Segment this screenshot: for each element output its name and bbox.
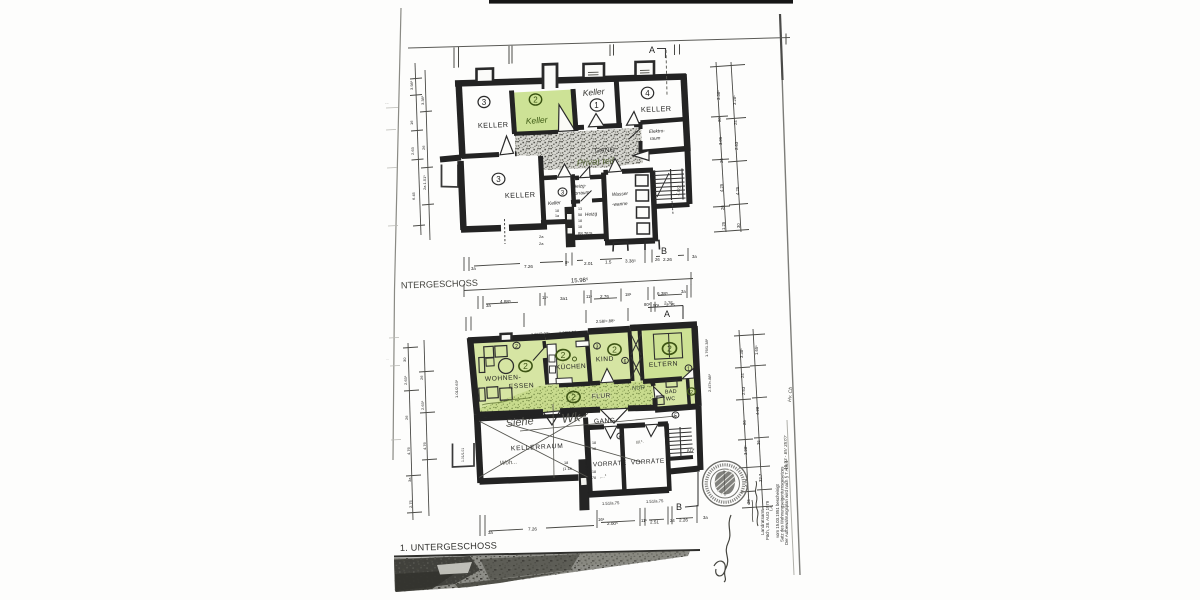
svg-text:GANG: GANG bbox=[595, 147, 615, 155]
svg-text:3: 3 bbox=[596, 344, 599, 350]
svg-text:26: 26 bbox=[655, 257, 660, 262]
svg-text:3.38⁵: 3.38⁵ bbox=[739, 348, 744, 358]
svg-text:2a 1.51⁵: 2a 1.51⁵ bbox=[422, 175, 427, 190]
svg-text:1.76/1.38⁵: 1.76/1.38⁵ bbox=[704, 338, 709, 357]
svg-text:2.26: 2.26 bbox=[663, 257, 672, 262]
svg-text:1.51/a.75: 1.51/a.75 bbox=[602, 500, 620, 506]
svg-text:B: B bbox=[676, 502, 682, 512]
svg-text:KELLER: KELLER bbox=[641, 104, 672, 114]
svg-text:BAD: BAD bbox=[665, 389, 677, 396]
svg-text:A: A bbox=[649, 45, 655, 55]
svg-text:11⁵: 11⁵ bbox=[641, 518, 647, 523]
svg-text:3.98⁵: 3.98⁵ bbox=[409, 80, 414, 90]
svg-text:1.01/2.63⁵: 1.01/2.63⁵ bbox=[454, 379, 459, 398]
svg-text:8⁵: 8⁵ bbox=[565, 260, 569, 265]
svg-text:26: 26 bbox=[720, 205, 725, 210]
svg-text:13: 13 bbox=[578, 207, 582, 211]
svg-text:2: 2 bbox=[667, 344, 672, 354]
svg-text:-.-.: -.-. bbox=[385, 101, 389, 105]
svg-text:16⁵: 16⁵ bbox=[598, 517, 605, 522]
svg-text:2: 2 bbox=[561, 350, 566, 360]
svg-text:KELLER: KELLER bbox=[478, 120, 509, 130]
svg-text:6.38⁵: 6.38⁵ bbox=[657, 291, 668, 296]
svg-text:24: 24 bbox=[740, 373, 745, 378]
svg-text:58: 58 bbox=[578, 213, 582, 217]
svg-text:Keller: Keller bbox=[548, 200, 562, 207]
svg-text:26: 26 bbox=[419, 375, 424, 380]
svg-text:3a: 3a bbox=[692, 254, 697, 259]
svg-text:4.28: 4.28 bbox=[755, 406, 760, 415]
svg-text:2: 2 bbox=[612, 345, 617, 355]
svg-text:2.63: 2.63 bbox=[741, 386, 746, 395]
svg-text:3a: 3a bbox=[486, 303, 491, 308]
svg-text:3: 3 bbox=[496, 175, 501, 184]
svg-text:Der Aufbewahrungsplan wird nac: Der Aufbewahrungsplan wird nach § 7 Abs.… bbox=[784, 460, 789, 545]
svg-text:...: ... bbox=[386, 357, 389, 361]
svg-text:2: 2 bbox=[523, 361, 528, 371]
svg-text:7.26: 7.26 bbox=[528, 527, 537, 532]
svg-text:KIND: KIND bbox=[596, 356, 614, 364]
svg-text:vom 15.03.1951 bescheinigt: vom 15.03.1951 bescheinigt bbox=[775, 483, 780, 538]
svg-text:GANG: GANG bbox=[594, 417, 616, 425]
svg-text:3.05: 3.05 bbox=[718, 136, 723, 145]
svg-text:4.25: 4.25 bbox=[719, 183, 724, 192]
svg-text:2.75: 2.75 bbox=[664, 301, 673, 306]
svg-text:15.93 - BV 357/7: 15.93 - BV 357/7 bbox=[783, 435, 788, 470]
svg-text:Satz des Wohnungseigentumsgese: Satz des Wohnungseigentumsgesetzes bbox=[780, 467, 785, 542]
svg-text:2.26: 2.26 bbox=[679, 518, 688, 523]
svg-text:2a: 2a bbox=[539, 241, 544, 246]
svg-text:11⁵: 11⁵ bbox=[586, 294, 592, 299]
svg-text:11⁵: 11⁵ bbox=[542, 295, 548, 300]
svg-text:1a: 1a bbox=[555, 214, 559, 218]
svg-text:3a1: 3a1 bbox=[560, 296, 568, 301]
svg-text:3.98⁵: 3.98⁵ bbox=[743, 445, 748, 455]
svg-text:4.76: 4.76 bbox=[406, 446, 411, 455]
svg-text:18⁵: 18⁵ bbox=[625, 292, 632, 297]
svg-text:24: 24 bbox=[670, 518, 675, 523]
svg-text:1: 1 bbox=[594, 101, 599, 110]
svg-text:Landratsamt: Landratsamt bbox=[760, 509, 765, 535]
svg-text:2.76: 2.76 bbox=[600, 294, 609, 299]
svg-text:Heizg-: Heizg- bbox=[573, 183, 587, 189]
svg-text:78: 78 bbox=[592, 476, 596, 480]
svg-text:1.01/1.01: 1.01/1.01 bbox=[461, 448, 465, 462]
svg-text:2.00⁵: 2.00⁵ bbox=[607, 521, 618, 526]
svg-text:30: 30 bbox=[736, 223, 741, 228]
svg-text:18: 18 bbox=[555, 209, 559, 213]
svg-text:4.76: 4.76 bbox=[422, 441, 427, 450]
svg-text:2: 2 bbox=[533, 96, 538, 105]
svg-text:5: 5 bbox=[674, 413, 677, 419]
svg-text:Pöch, 28. AUG 1979: Pöch, 28. AUG 1979 bbox=[765, 500, 770, 540]
svg-text:Keller: Keller bbox=[582, 86, 606, 98]
svg-text:3.38⁵: 3.38⁵ bbox=[625, 259, 636, 264]
svg-text:2a: 2a bbox=[539, 234, 544, 239]
svg-text:32.7: 32.7 bbox=[758, 473, 763, 482]
svg-text:1.25: 1.25 bbox=[721, 221, 726, 230]
svg-text:3: 3 bbox=[482, 98, 487, 107]
svg-text:A: A bbox=[664, 309, 670, 319]
svg-text:1: 1 bbox=[687, 366, 690, 372]
svg-text:6.45: 6.45 bbox=[411, 191, 416, 200]
svg-text:4.88⁵: 4.88⁵ bbox=[500, 299, 511, 304]
svg-text:ESSEN: ESSEN bbox=[509, 382, 535, 390]
svg-text:3.28⁵: 3.28⁵ bbox=[732, 95, 737, 105]
svg-text:1.26/1.26: 1.26/1.26 bbox=[559, 330, 577, 336]
svg-text:3a: 3a bbox=[471, 266, 476, 271]
svg-text:1.51/a.75: 1.51/a.75 bbox=[646, 498, 664, 504]
svg-text:26: 26 bbox=[746, 499, 751, 504]
svg-text:(1 18: (1 18 bbox=[563, 467, 572, 471]
svg-text:WC: WC bbox=[666, 396, 676, 402]
svg-text:20: 20 bbox=[717, 117, 722, 122]
svg-text:Elektro-: Elektro- bbox=[649, 128, 666, 134]
svg-text:2.01: 2.01 bbox=[584, 261, 593, 266]
svg-text:3a: 3a bbox=[488, 530, 493, 535]
svg-text:2.63: 2.63 bbox=[734, 141, 739, 150]
svg-text:NUR: NUR bbox=[632, 385, 646, 392]
svg-text:4: 4 bbox=[645, 89, 650, 98]
svg-text:Wk: Wk bbox=[561, 409, 583, 426]
svg-text:KELLER: KELLER bbox=[505, 190, 536, 200]
svg-text:24: 24 bbox=[733, 120, 738, 125]
svg-text:raum: raum bbox=[650, 135, 661, 141]
svg-text:Keller: Keller bbox=[525, 114, 549, 126]
svg-text:26: 26 bbox=[719, 158, 724, 163]
svg-text:26: 26 bbox=[421, 145, 426, 150]
svg-text:2: 2 bbox=[571, 392, 576, 402]
svg-text:6: 6 bbox=[619, 434, 622, 440]
svg-text:3.38⁵: 3.38⁵ bbox=[420, 95, 425, 105]
svg-text:3a: 3a bbox=[703, 515, 708, 520]
svg-text:2.63: 2.63 bbox=[410, 146, 415, 155]
svg-text:2: 2 bbox=[690, 390, 693, 396]
svg-text:30: 30 bbox=[402, 357, 407, 362]
svg-text:88 763⁵: 88 763⁵ bbox=[578, 231, 593, 236]
svg-text:36: 36 bbox=[756, 440, 761, 445]
svg-text:15.98⁵: 15.98⁵ bbox=[571, 277, 589, 285]
svg-text:18: 18 bbox=[578, 225, 582, 229]
svg-text:1.65⁵: 1.65⁵ bbox=[754, 345, 759, 355]
svg-text:2.51: 2.51 bbox=[650, 520, 659, 525]
svg-text:FLUR: FLUR bbox=[592, 393, 611, 401]
svg-text:1.5: 1.5 bbox=[605, 260, 612, 265]
svg-text:Wasser: Wasser bbox=[612, 191, 629, 198]
svg-text:B: B bbox=[661, 246, 667, 256]
svg-text:2.63⁵: 2.63⁵ bbox=[420, 400, 425, 410]
svg-text:1.01/2.23⁵: 1.01/2.23⁵ bbox=[531, 331, 551, 337]
svg-text:2.63⁵: 2.63⁵ bbox=[403, 375, 408, 385]
svg-text:3a: 3a bbox=[407, 477, 412, 482]
svg-text:Heizg: Heizg bbox=[585, 211, 598, 218]
svg-text:18: 18 bbox=[578, 219, 582, 223]
svg-text:2: 2 bbox=[515, 344, 518, 350]
svg-text:2.47/≈.88⁵: 2.47/≈.88⁵ bbox=[707, 373, 712, 392]
svg-text:3a: 3a bbox=[681, 289, 686, 294]
svg-text:4.25: 4.25 bbox=[735, 186, 740, 195]
svg-text:18: 18 bbox=[592, 441, 596, 445]
svg-text:18: 18 bbox=[564, 461, 568, 465]
svg-text:26: 26 bbox=[404, 415, 409, 420]
svg-text:16: 16 bbox=[409, 120, 414, 125]
svg-text:2.75: 2.75 bbox=[408, 499, 413, 508]
svg-text:,...¹: ,...¹ bbox=[599, 473, 607, 479]
svg-text:KÜCHEN: KÜCHEN bbox=[556, 362, 587, 372]
svg-text:18: 18 bbox=[592, 447, 596, 451]
svg-text:6: 6 bbox=[624, 359, 627, 365]
svg-text:3.38⁵: 3.38⁵ bbox=[716, 90, 721, 100]
svg-text:18: 18 bbox=[592, 470, 596, 474]
svg-text:26: 26 bbox=[742, 420, 747, 425]
svg-text:2.58/≈.88⁵: 2.58/≈.88⁵ bbox=[596, 318, 616, 324]
svg-text:80⁵: 80⁵ bbox=[644, 302, 651, 307]
svg-text:NZ: NZ bbox=[687, 449, 695, 455]
svg-text:7.26: 7.26 bbox=[524, 264, 533, 269]
